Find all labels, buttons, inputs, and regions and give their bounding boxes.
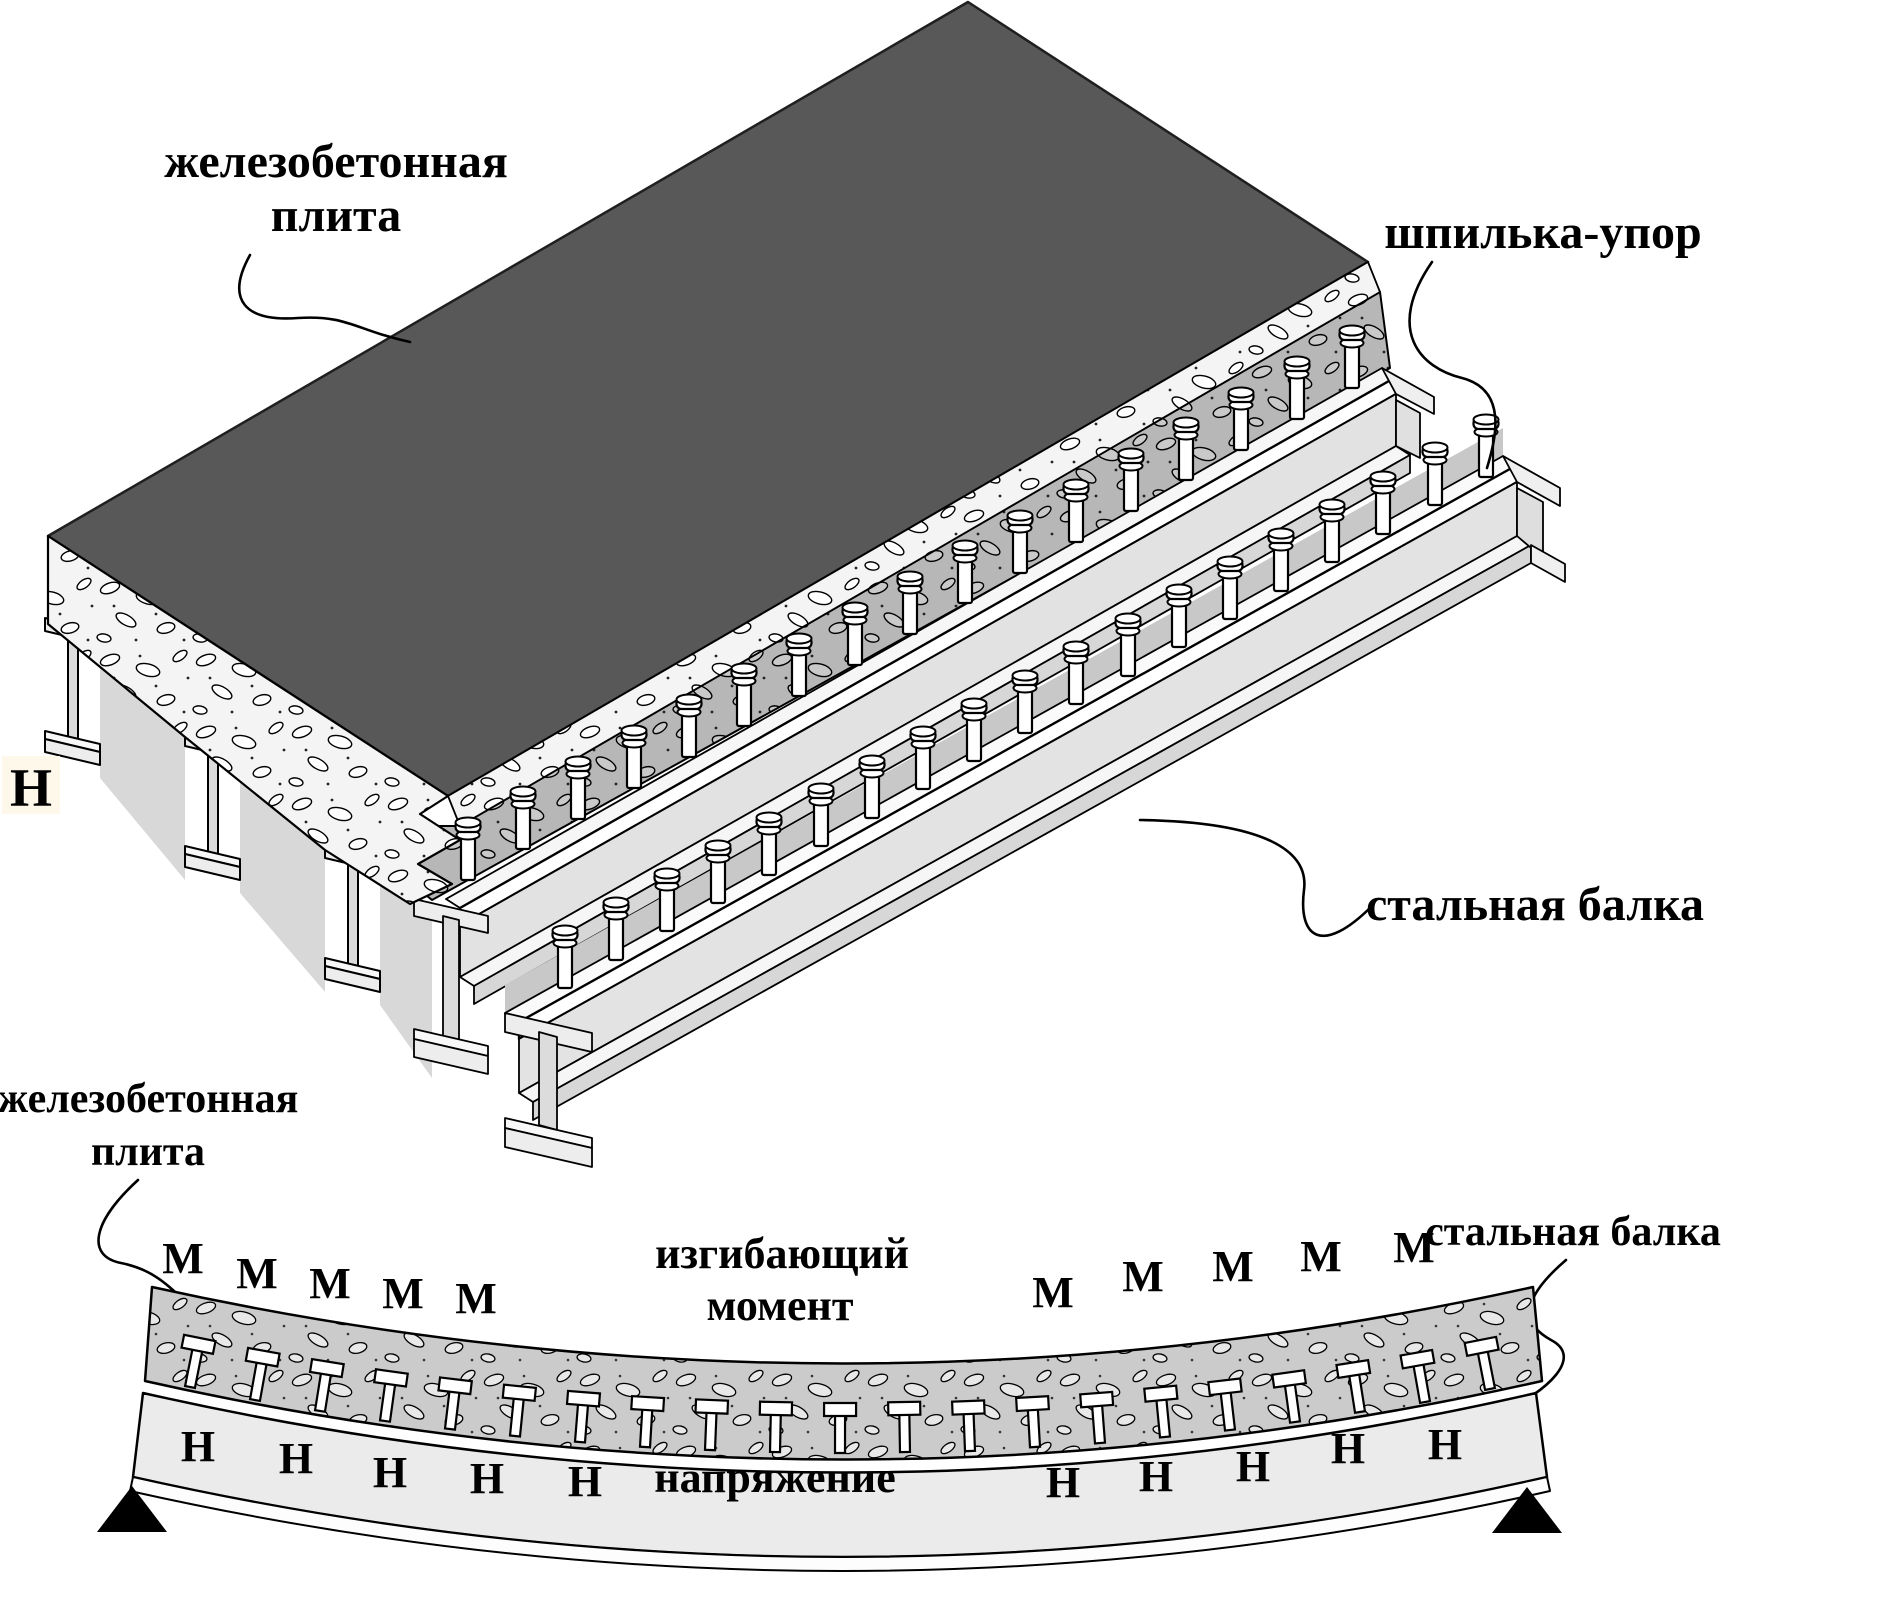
label-bending-moment-line2: момент	[706, 1281, 853, 1330]
leader-steel-beam-top	[1140, 820, 1372, 936]
stress-mark: H	[1236, 1442, 1270, 1491]
stress-mark: H	[1139, 1452, 1173, 1501]
stress-mark: H	[181, 1422, 215, 1471]
moment-mark: M	[236, 1249, 278, 1298]
label-stud: шпилька-упор	[1384, 206, 1701, 259]
leader-slab-top	[239, 255, 410, 342]
stress-mark: H	[279, 1434, 313, 1483]
moment-mark: M	[382, 1269, 424, 1318]
label-top-slab-line2: плита	[271, 189, 401, 242]
label-bending-moment-line1: изгибающий	[655, 1229, 909, 1278]
label-steel-beam-bottom: стальная балка	[1425, 1209, 1721, 1255]
stress-mark: H	[1428, 1420, 1462, 1469]
moment-mark: M	[1122, 1252, 1164, 1301]
label-bottom-slab-line2: плита	[91, 1129, 205, 1175]
composite-beam-diagram: H	[0, 0, 1886, 1622]
moment-mark: M	[162, 1234, 204, 1283]
label-bottom-slab-line1: железобетонная	[0, 1076, 298, 1122]
stress-mark: H	[1331, 1424, 1365, 1473]
stress-mark: H	[1046, 1458, 1080, 1507]
stress-mark: H	[568, 1457, 602, 1506]
moment-mark: M	[1212, 1242, 1254, 1291]
beam-end-bottom-flange	[1531, 545, 1565, 582]
label-steel-beam-top: стальная балка	[1366, 878, 1704, 931]
stress-mark: H	[373, 1448, 407, 1497]
section-mark: H	[10, 758, 52, 818]
label-stress: напряжение	[654, 1453, 895, 1502]
stress-mark: H	[470, 1454, 504, 1503]
moment-mark: M	[1032, 1268, 1074, 1317]
moment-mark: M	[309, 1259, 351, 1308]
label-top-slab-line1: железобетонная	[164, 135, 508, 188]
moment-mark: M	[1300, 1232, 1342, 1281]
moment-mark: M	[455, 1274, 497, 1323]
